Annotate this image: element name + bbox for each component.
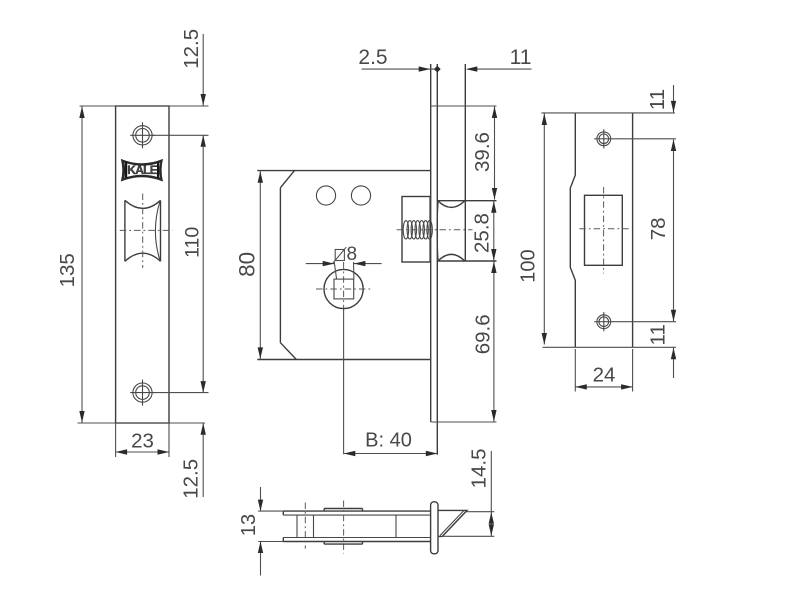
svg-text:110: 110 bbox=[182, 227, 204, 258]
svg-text:100: 100 bbox=[517, 249, 539, 282]
svg-text:14.5: 14.5 bbox=[468, 448, 491, 488]
svg-text:69.6: 69.6 bbox=[471, 314, 494, 354]
svg-text:KALE: KALE bbox=[127, 163, 158, 177]
svg-text:25.8: 25.8 bbox=[471, 213, 494, 253]
svg-text:12.5: 12.5 bbox=[180, 29, 203, 69]
svg-text:13: 13 bbox=[238, 514, 260, 536]
svg-text:2.5: 2.5 bbox=[358, 46, 387, 69]
svg-text:39.6: 39.6 bbox=[471, 132, 494, 172]
svg-text:135: 135 bbox=[56, 253, 79, 287]
svg-text:11: 11 bbox=[646, 324, 669, 345]
svg-text:11: 11 bbox=[510, 46, 532, 69]
svg-text:11: 11 bbox=[646, 89, 669, 110]
svg-text:80: 80 bbox=[235, 252, 260, 277]
svg-text:24: 24 bbox=[593, 364, 616, 387]
svg-text:23: 23 bbox=[131, 430, 154, 453]
svg-text:12.5: 12.5 bbox=[180, 459, 203, 499]
svg-text:B: 40: B: 40 bbox=[365, 430, 412, 452]
svg-text:8: 8 bbox=[347, 244, 358, 265]
svg-text:78: 78 bbox=[647, 217, 670, 240]
